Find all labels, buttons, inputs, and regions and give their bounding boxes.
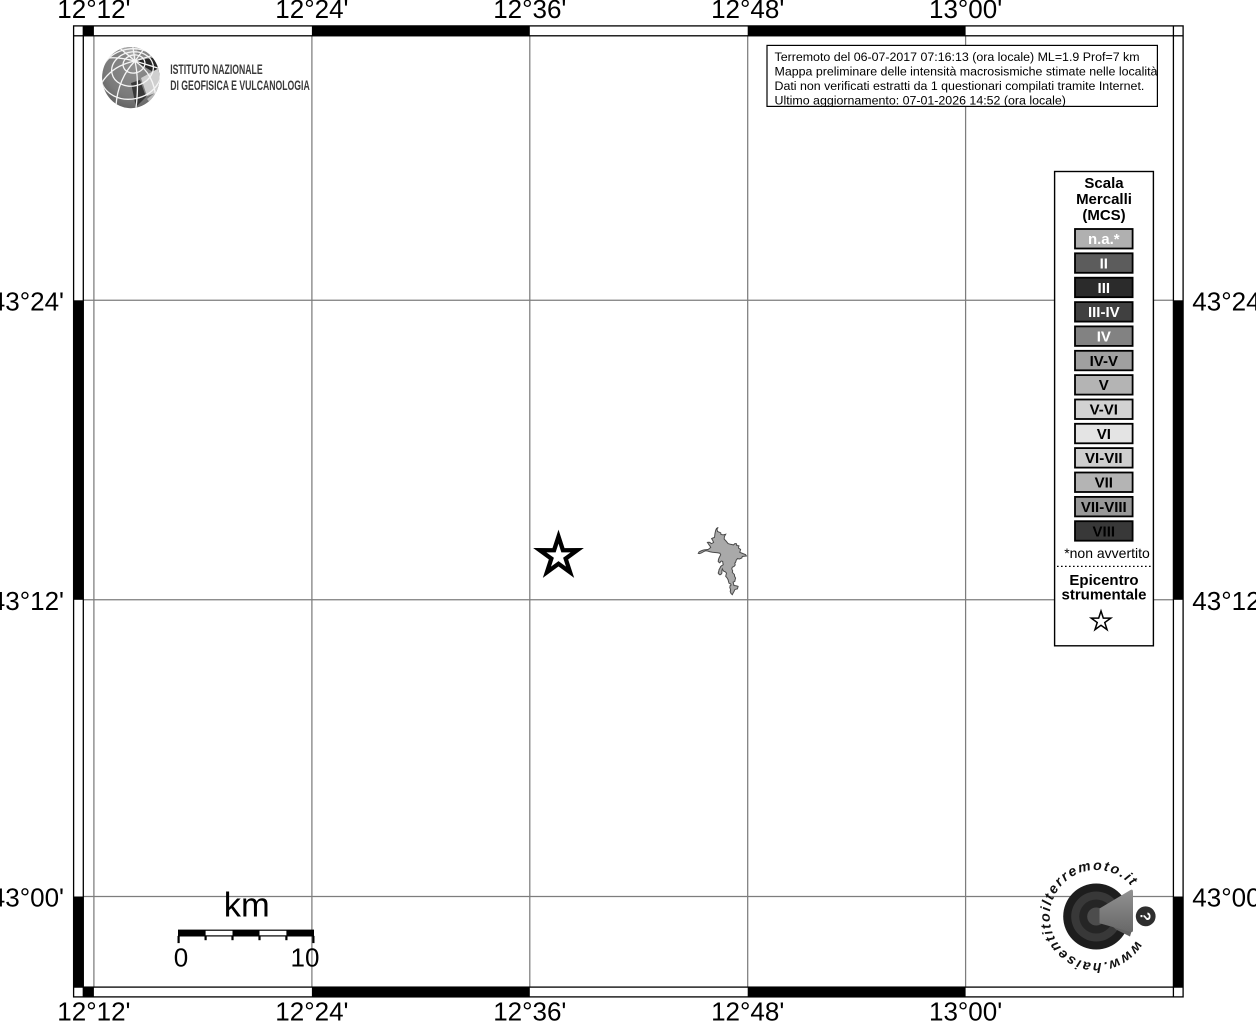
svg-text:13°00': 13°00'	[929, 0, 1002, 24]
svg-text:12°24': 12°24'	[275, 0, 348, 24]
svg-text:Scala: Scala	[1084, 175, 1124, 192]
svg-text:VIII: VIII	[1093, 523, 1116, 540]
svg-text:12°12': 12°12'	[57, 996, 130, 1024]
svg-text:DI GEOFISICA E VULCANOLOGIA: DI GEOFISICA E VULCANOLOGIA	[170, 79, 310, 93]
svg-text:12°36': 12°36'	[493, 996, 566, 1024]
svg-text:III: III	[1098, 280, 1111, 297]
svg-text:II: II	[1100, 255, 1108, 272]
svg-text:43°24': 43°24'	[0, 286, 64, 316]
svg-text:Ultimo aggiornamento: 07-01-20: Ultimo aggiornamento: 07-01-2026 14:52 (…	[775, 93, 1066, 107]
svg-text:n.a.*: n.a.*	[1088, 231, 1120, 248]
svg-text:V: V	[1099, 377, 1109, 394]
svg-text:VI-VII: VI-VII	[1085, 450, 1123, 467]
svg-text:Dati non verificati estratti d: Dati non verificati estratti da 1 questi…	[775, 79, 1145, 93]
svg-text:43°12': 43°12'	[0, 586, 64, 616]
svg-text:IV: IV	[1097, 329, 1111, 346]
svg-text:Mercalli: Mercalli	[1076, 191, 1132, 208]
svg-text:13°00': 13°00'	[929, 996, 1002, 1024]
svg-text:43°00': 43°00'	[0, 883, 64, 913]
svg-text:V-VI: V-VI	[1090, 402, 1118, 419]
svg-text:(MCS): (MCS)	[1082, 207, 1125, 224]
svg-text:12°48': 12°48'	[711, 0, 784, 24]
svg-text:43°24': 43°24'	[1192, 286, 1256, 316]
svg-text:ISTITUTO NAZIONALE: ISTITUTO NAZIONALE	[170, 63, 263, 77]
svg-text:12°36': 12°36'	[493, 0, 566, 24]
svg-text:?: ?	[1137, 912, 1154, 921]
svg-text:VII-VIII: VII-VIII	[1081, 499, 1127, 516]
svg-text:VII: VII	[1095, 475, 1113, 492]
svg-text:*non avvertito: *non avvertito	[1064, 545, 1150, 561]
svg-text:0: 0	[174, 943, 188, 973]
svg-text:km: km	[224, 887, 270, 925]
svg-text:Terremoto del 06-07-2017 07:16: Terremoto del 06-07-2017 07:16:13 (ora l…	[775, 50, 1140, 64]
svg-text:III-IV: III-IV	[1088, 304, 1120, 321]
svg-text:Mappa preliminare delle intens: Mappa preliminare delle intensità macros…	[775, 64, 1158, 78]
svg-text:10: 10	[291, 943, 320, 973]
svg-text:43°00': 43°00'	[1192, 883, 1256, 913]
svg-text:43°12': 43°12'	[1192, 586, 1256, 616]
svg-text:12°48': 12°48'	[711, 996, 784, 1024]
svg-text:IV-V: IV-V	[1090, 353, 1118, 370]
svg-text:12°24': 12°24'	[275, 996, 348, 1024]
svg-text:12°12': 12°12'	[57, 0, 130, 24]
svg-text:strumentale: strumentale	[1061, 587, 1146, 604]
svg-text:VI: VI	[1097, 426, 1111, 443]
